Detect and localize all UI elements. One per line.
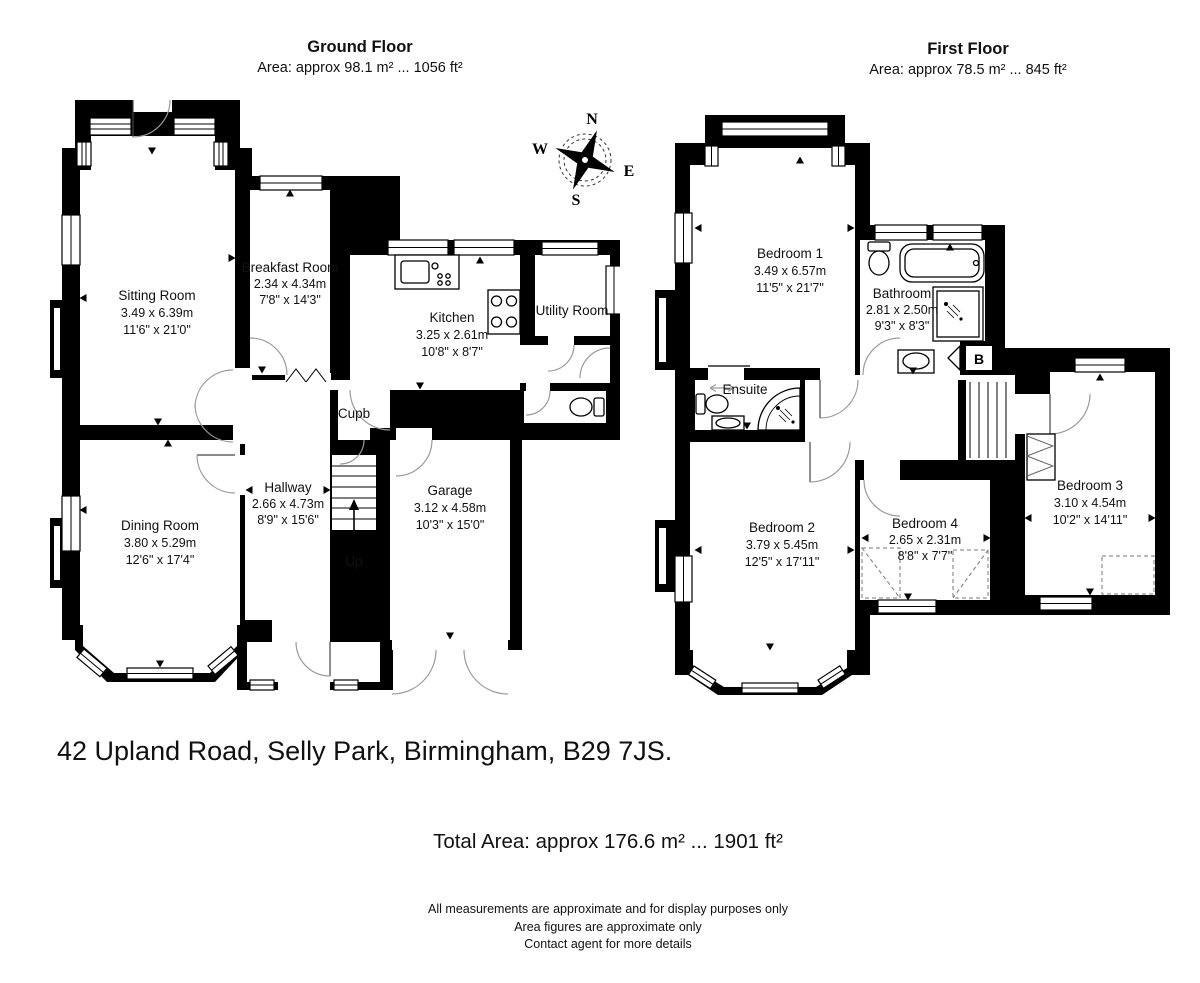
svg-text:12'5" x 17'11": 12'5" x 17'11" [745, 555, 820, 569]
first-floor-plan: B Bedroom 1 3.49 x 6.57m 11'5" [650, 98, 1180, 698]
breakfast-room-label: Breakfast Room [242, 260, 339, 275]
cupboard-label: Cupb [338, 406, 370, 421]
svg-text:10'2" x 14'11": 10'2" x 14'11" [1053, 513, 1128, 527]
disclaimer-line-3: Contact agent for more details [308, 936, 908, 954]
compass-s: S [572, 192, 581, 209]
bathroom-label: Bathroom [873, 286, 932, 301]
toilet-icon [570, 398, 604, 416]
svg-text:10'3" x 15'0": 10'3" x 15'0" [416, 518, 485, 532]
svg-text:11'6" x 21'0": 11'6" x 21'0" [123, 323, 191, 337]
svg-text:2.66 x 4.73m: 2.66 x 4.73m [252, 497, 324, 511]
ground-floor-header: Ground Floor Area: approx 98.1 m² ... 10… [110, 38, 610, 76]
first-floor-title: First Floor [718, 40, 1200, 59]
hob-icon [488, 290, 520, 334]
wardrobe-icon [953, 550, 988, 598]
compass-rose-icon: N E S W [528, 106, 640, 210]
svg-text:2.34 x 4.34m: 2.34 x 4.34m [254, 277, 326, 291]
svg-text:3.12 x 4.58m: 3.12 x 4.58m [414, 501, 486, 515]
bedroom3-label: Bedroom 3 [1057, 478, 1123, 493]
room-porch [91, 136, 215, 170]
toilet-icon [868, 242, 890, 275]
toilet-icon [696, 394, 728, 414]
svg-text:11'5" x 21'7": 11'5" x 21'7" [756, 281, 824, 295]
svg-text:2.81 x 2.50m: 2.81 x 2.50m [866, 303, 938, 317]
hallway-label: Hallway [264, 480, 312, 495]
disclaimer: All measurements are approximate and for… [308, 901, 908, 954]
sink-icon [712, 416, 744, 430]
svg-text:8'8" x 7'7": 8'8" x 7'7" [898, 549, 953, 563]
kitchen-sink-icon [395, 255, 459, 289]
svg-text:7'8" x 14'3": 7'8" x 14'3" [259, 293, 321, 307]
garage-label: Garage [427, 483, 472, 498]
property-address: 42 Upland Road, Selly Park, Birmingham, … [57, 736, 672, 767]
entrance-porch [247, 642, 380, 682]
stairs-up-label: Up [345, 554, 362, 569]
svg-text:3.25 x 2.61m: 3.25 x 2.61m [416, 328, 488, 342]
svg-text:3.79 x 5.45m: 3.79 x 5.45m [746, 538, 818, 552]
first-floor-area: Area: approx 78.5 m² ... 845 ft² [718, 62, 1200, 78]
compass-e: E [624, 163, 635, 180]
total-area: Total Area: approx 176.6 m² ... 1901 ft² [308, 830, 908, 854]
wardrobe-icon [1027, 434, 1055, 480]
sitting-room-label: Sitting Room [118, 288, 195, 303]
sink-icon [898, 350, 934, 373]
kitchen-label: Kitchen [429, 310, 474, 325]
svg-text:3.80 x 5.29m: 3.80 x 5.29m [124, 536, 196, 550]
svg-text:12'6" x 17'4": 12'6" x 17'4" [126, 553, 195, 567]
svg-text:3.10 x 4.54m: 3.10 x 4.54m [1054, 496, 1126, 510]
dining-room-label: Dining Room [121, 518, 199, 533]
svg-text:2.65 x 2.31m: 2.65 x 2.31m [889, 533, 961, 547]
ground-floor-area: Area: approx 98.1 m² ... 1056 ft² [110, 60, 610, 76]
ground-floor-title: Ground Floor [110, 38, 610, 57]
compass-w: W [532, 141, 548, 158]
svg-text:3.49 x 6.57m: 3.49 x 6.57m [754, 264, 826, 278]
bedroom4-label: Bedroom 4 [892, 516, 959, 531]
bedroom1-label: Bedroom 1 [757, 246, 823, 261]
bedroom2-label: Bedroom 2 [749, 520, 815, 535]
first-floor-header: First Floor Area: approx 78.5 m² ... 845… [718, 40, 1200, 78]
compass-n: N [586, 111, 598, 128]
svg-text:3.49 x 6.39m: 3.49 x 6.39m [121, 306, 193, 320]
svg-text:9'3" x 8'3": 9'3" x 8'3" [875, 319, 930, 333]
utility-room-label: Utility Room [536, 303, 609, 318]
bath-icon [900, 244, 984, 282]
rear-lobby [500, 345, 610, 383]
disclaimer-line-2: Area figures are approximate only [308, 919, 908, 937]
svg-text:8'9" x 15'6": 8'9" x 15'6" [257, 513, 319, 527]
room-garage [390, 440, 510, 640]
shower-icon [933, 287, 983, 341]
ensuite-label: Ensuite [722, 382, 767, 397]
room-utility [535, 255, 610, 336]
wardrobe-icon [862, 548, 900, 598]
disclaimer-line-1: All measurements are approximate and for… [308, 901, 908, 919]
boiler-label: B [974, 351, 984, 367]
svg-text:10'8" x 8'7": 10'8" x 8'7" [421, 345, 483, 359]
